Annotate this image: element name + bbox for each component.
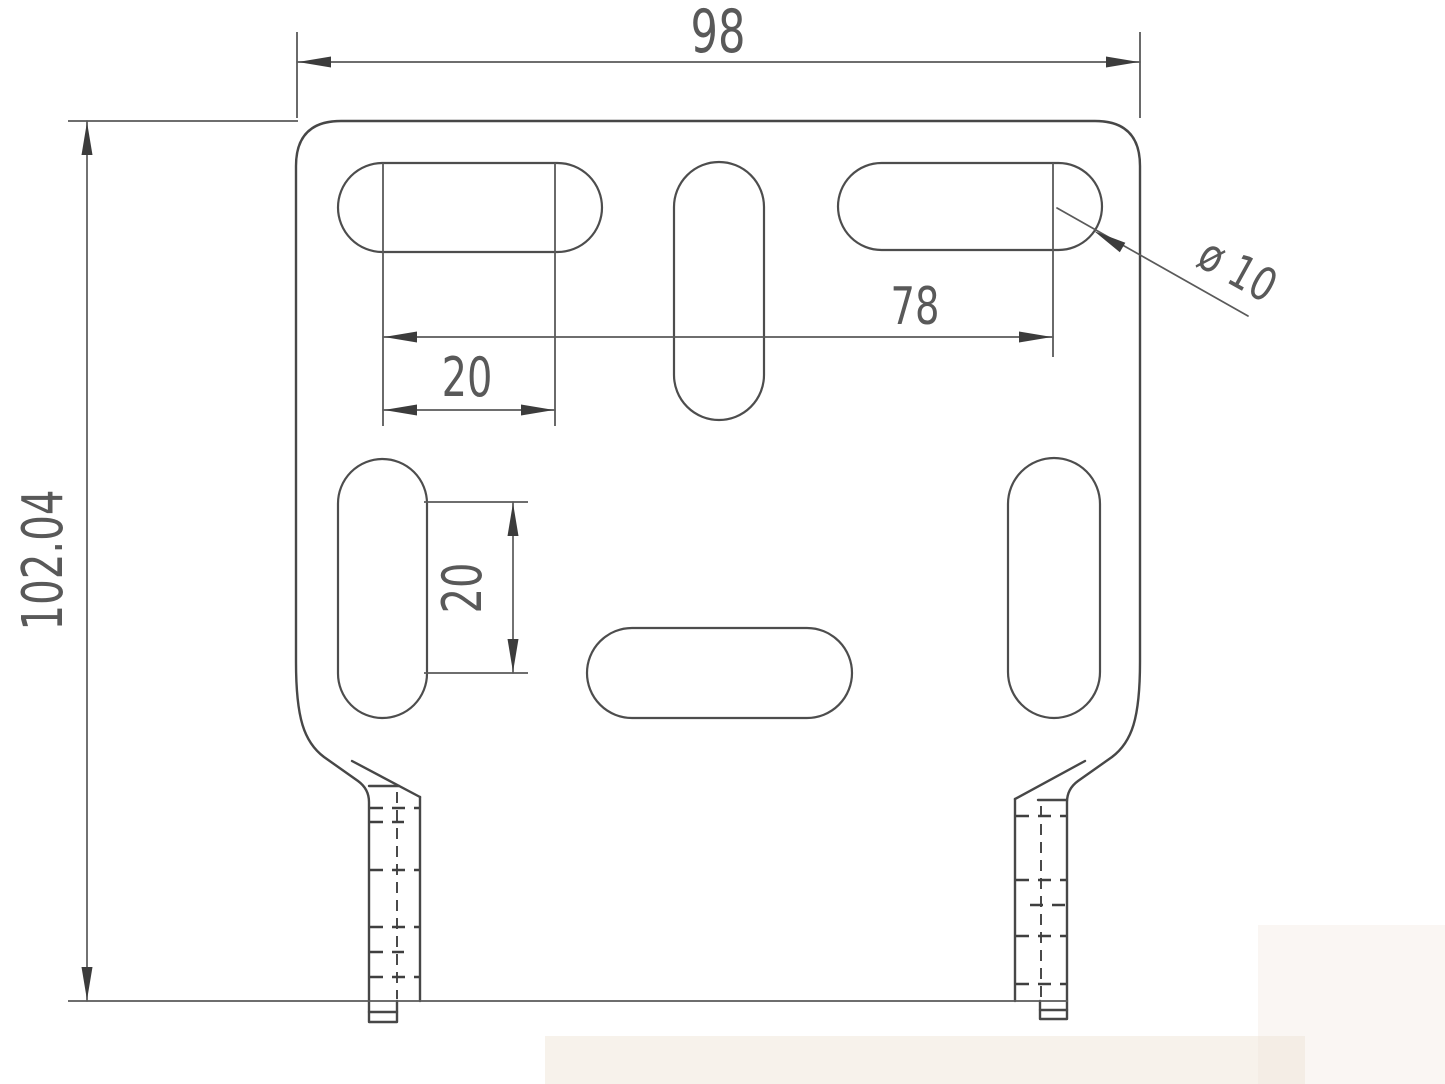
dimension-lines-group bbox=[82, 57, 1249, 1002]
left-leg-bend-line bbox=[352, 761, 420, 797]
arrowhead bbox=[1019, 332, 1052, 343]
slot-top-right bbox=[838, 163, 1102, 250]
arrowhead bbox=[1106, 57, 1139, 68]
plate-outline-group bbox=[296, 121, 1140, 1022]
slot-middle-left bbox=[338, 459, 427, 718]
slots-group bbox=[338, 162, 1102, 718]
label-side-slot-pitch: 20 bbox=[432, 563, 495, 614]
arrowhead bbox=[508, 639, 519, 672]
arrowhead bbox=[508, 503, 519, 536]
arrowhead bbox=[521, 405, 554, 416]
slot-bottom-center bbox=[587, 628, 852, 718]
label-top-slot-pitch: 20 bbox=[442, 347, 493, 410]
slot-middle-right bbox=[1008, 458, 1100, 718]
drawing-stage: 98 102.04 78 20 20 ø 10 bbox=[0, 0, 1445, 1084]
arrowhead bbox=[82, 122, 93, 155]
label-overall-height: 102.04 bbox=[10, 489, 75, 630]
arrowhead bbox=[82, 967, 93, 1000]
slot-top-center bbox=[674, 162, 764, 420]
label-hole-diameter: ø 10 bbox=[1189, 227, 1286, 314]
arrowhead bbox=[384, 405, 417, 416]
arrowhead bbox=[298, 57, 331, 68]
right-leg-hidden-lines bbox=[1016, 806, 1066, 999]
label-hole-span: 78 bbox=[891, 276, 940, 336]
extension-lines-group bbox=[68, 32, 1140, 1001]
left-leg-hidden-lines bbox=[370, 792, 419, 999]
dimension-labels-group: 98 102.04 78 20 20 ø 10 bbox=[10, 0, 1286, 631]
label-overall-width: 98 bbox=[691, 0, 746, 67]
right-leg-bend-line bbox=[1015, 761, 1085, 799]
slot-top-left bbox=[338, 163, 602, 252]
arrowhead bbox=[384, 332, 417, 343]
bracket-technical-drawing: 98 102.04 78 20 20 ø 10 bbox=[0, 0, 1445, 1084]
